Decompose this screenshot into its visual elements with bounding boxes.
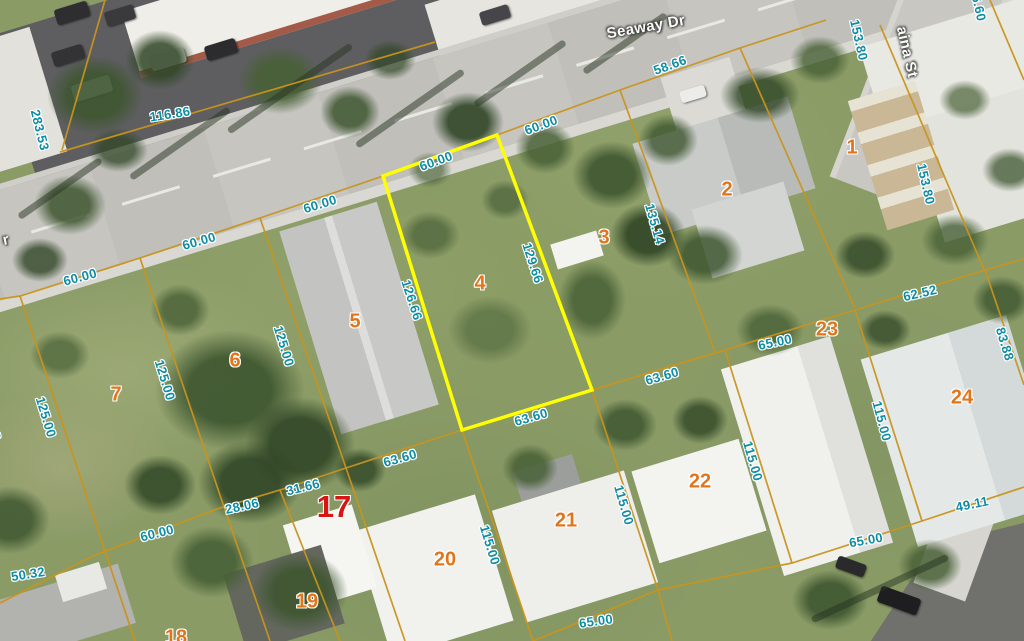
tree (835, 231, 895, 279)
vegetation-layer (0, 0, 1024, 641)
tree (515, 122, 575, 174)
tree (859, 310, 911, 350)
tree (124, 455, 196, 515)
tree (30, 331, 90, 379)
palm-shadow (473, 39, 567, 108)
tree (939, 80, 991, 120)
tree (12, 238, 68, 282)
tree (334, 448, 386, 492)
tree (252, 552, 348, 632)
tree (736, 304, 804, 356)
tree (0, 486, 50, 554)
tree (502, 444, 558, 492)
tree (593, 399, 657, 451)
tree (720, 67, 800, 123)
tree (238, 46, 322, 114)
tree (790, 36, 850, 84)
tree (364, 40, 416, 80)
tree (432, 92, 504, 152)
tree (638, 114, 698, 166)
palm-shadow (582, 12, 668, 75)
tree (672, 396, 728, 444)
tree (170, 526, 254, 598)
tree (921, 214, 989, 266)
aerial-parcel-map: Seaway Draina Str283.53116.8658.6660.006… (0, 0, 1024, 641)
tree (198, 440, 302, 524)
tree (125, 30, 195, 90)
tree (448, 296, 532, 364)
tree (982, 148, 1024, 192)
tree (667, 225, 743, 285)
tree (400, 211, 460, 259)
tree (972, 276, 1024, 324)
tree (150, 284, 210, 336)
